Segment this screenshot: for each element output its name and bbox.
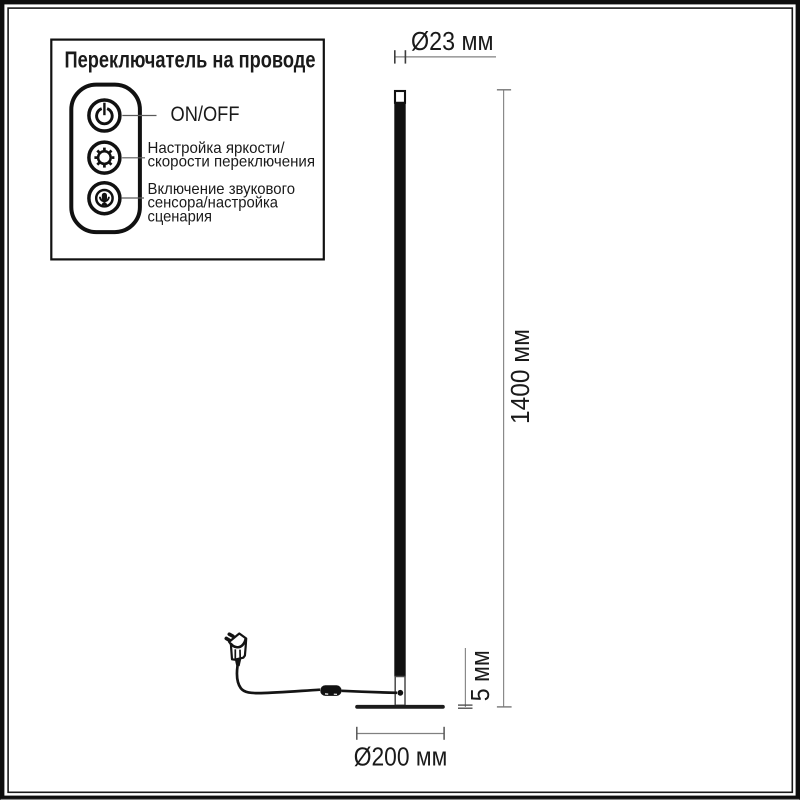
svg-text:Ø200 мм: Ø200 мм <box>354 744 448 772</box>
svg-text:ON/OFF: ON/OFF <box>171 103 240 126</box>
svg-text:скорости переключения: скорости переключения <box>148 154 316 171</box>
svg-text:5 мм: 5 мм <box>467 650 495 701</box>
svg-text:сценария: сценария <box>148 208 213 225</box>
svg-text:Ø23 мм: Ø23 мм <box>411 28 494 56</box>
svg-text:Переключатель на проводе: Переключатель на проводе <box>65 47 316 73</box>
svg-text:1400 мм: 1400 мм <box>507 329 535 424</box>
